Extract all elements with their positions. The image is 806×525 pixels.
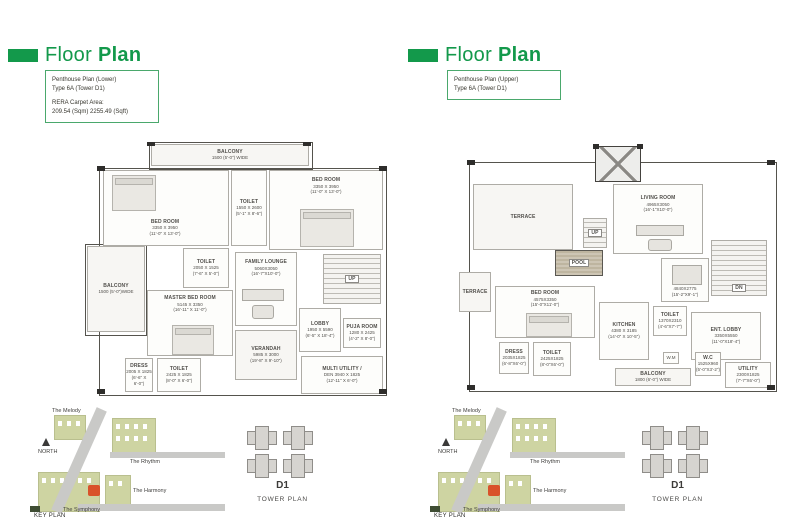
site-edge-strip (30, 506, 40, 512)
room-dim-label: 1500 (5'-0") WIDE (212, 155, 248, 161)
penthouse-lower-plan: BALCONY 1500 (5'-0") WIDE BED ROOM 3350 … (85, 142, 400, 398)
room-lobby: LOBBY 1950 X 5590 (6'-5" X 18'-4") (299, 308, 341, 352)
key-plan-caption: KEY PLAN (434, 513, 466, 519)
north-arrow-icon (42, 438, 50, 446)
room-dim-label: 1500 (5'-0")WIDE (99, 289, 134, 295)
room-balcony-top: BALCONY 1500 (5'-0") WIDE (151, 144, 309, 166)
site-block-rhythm (112, 418, 156, 456)
label-symphony: The Symphony (463, 507, 500, 513)
room-wc: W.C 1525X960 (5'-0"X3'-2") (695, 352, 721, 376)
title-bold: Plan (98, 44, 141, 66)
room-dim-label: (8'-0"X6'-0") (540, 362, 564, 368)
tower-plan-caption: TOWER PLAN (235, 496, 330, 503)
stairs-up: UP (323, 254, 381, 304)
wall-column (767, 385, 775, 390)
room-dim-label: (11'-0"X18'-4") (712, 339, 741, 345)
plan-type-line: Penthouse Plan (Upper) (454, 76, 554, 85)
room-balcony-left: BALCONY 1500 (5'-0")WIDE (87, 246, 145, 332)
room-family-lounge: FAMILY LOUNGE 5060X3050 (16'-7"X10'-0") (235, 252, 297, 326)
tower-unit (678, 454, 708, 478)
site-road-horizontal (110, 452, 225, 458)
north-label: NORTH (38, 449, 57, 455)
room-dress: DRESS 2005 X 1825 (6'-6" X 6'-0") (125, 358, 153, 392)
floor-plan-header-right: Floor Plan (408, 44, 541, 67)
room-bed-room: BED ROOM 4575X3350 (15'-0"X11'-0") (495, 286, 595, 338)
room-toilet-master: TOILET 2425 X 1825 (8'-0" X 6'-0") (157, 358, 201, 392)
table-furniture (252, 305, 274, 319)
site-block-melody (454, 415, 486, 440)
room-dim-label: (5'-1" X 8'-6") (236, 211, 262, 217)
room-dim-label: (16'-11" X 11'-0") (173, 307, 206, 313)
key-plan-right: NORTH The Melody The Rhythm The Harmony … (430, 402, 625, 520)
wall-column (467, 160, 475, 165)
lift-shaft (595, 146, 641, 182)
room-toilet-mid: TOILET 2050 X 1525 (7'-6" X 5'-0") (183, 248, 229, 288)
room-dim-label: (6'-5" X 18'-4") (306, 333, 335, 339)
pool: POOL (555, 250, 603, 276)
wall-column (637, 144, 643, 149)
north-arrow-icon (442, 438, 450, 446)
room-dress: DRESS 2035X1825 (6'-8"X6'-0") (499, 342, 529, 374)
room-kitchen: KITCHEN 4380 X 3185 (14'-0" X 10'-5") (599, 302, 649, 360)
room-dim-label: (12'-11" X 6'-0") (326, 378, 357, 384)
highlighted-building (88, 485, 100, 496)
floor-plan-header-left: Floor Plan (8, 44, 141, 67)
room-name-label: W.M (667, 355, 676, 361)
room-living: LIVING ROOM 4965X3050 (16'-1"X10'-0") (613, 184, 703, 254)
wall-column (303, 142, 311, 146)
wall-column (147, 142, 155, 146)
room-bed-room-2: BED ROOM 3350 X 3950 (11'-0" X 13'-0") (269, 170, 383, 250)
wall-column (97, 389, 105, 394)
room-dim-label: (4'-2" X 8'-0") (349, 336, 375, 342)
site-road-horizontal (510, 452, 625, 458)
tower-unit (678, 426, 708, 450)
stairs-up-label: UP (345, 275, 358, 284)
tower-line: Type 6A (Tower D1) (52, 85, 152, 94)
site-block-rhythm (512, 418, 556, 456)
penthouse-upper-plan: TERRACE LIVING ROOM 4965X3050 (16'-1"X10… (455, 140, 790, 398)
title-bold: Plan (498, 44, 541, 66)
title-light: Floor (445, 44, 492, 66)
site-block-harmony (505, 475, 531, 507)
label-harmony: The Harmony (133, 488, 166, 494)
tower-plan-right: D1 TOWER PLAN (630, 424, 725, 510)
green-block-icon (8, 49, 38, 62)
plan-info-box-lower: Penthouse Plan (Lower) Type 6A (Tower D1… (45, 70, 159, 123)
wall-column (593, 144, 599, 149)
room-dim-label: (8'-0" X 6'-0") (166, 378, 192, 384)
site-edge-strip (430, 506, 440, 512)
tower-unit (283, 426, 313, 450)
key-plan-left: NORTH The Melody The Rhythm The Harmony … (30, 402, 225, 520)
room-bed-room-1: BED ROOM 3350 X 3950 (11'-0" X 13'-0") (103, 170, 229, 246)
room-toilet-master: TOILET 2425X1825 (8'-0"X6'-0") (533, 342, 571, 376)
room-dim-label: (7'-7"X6'-0") (736, 378, 760, 384)
tower-plan-left: D1 TOWER PLAN (235, 424, 330, 510)
room-multi-utility: MULTI UTILITY / DEN 3940 X 1825 (12'-11"… (301, 356, 383, 394)
tower-name: D1 (235, 480, 330, 491)
sofa-furniture (242, 289, 284, 301)
room-dim-label: 1800 (6'-0") WIDE (635, 377, 671, 383)
room-dim-label: (15'-2"X9'-1") (672, 292, 698, 298)
site-block-melody (54, 415, 86, 440)
room-verandah: VERANDAH 5985 X 3000 (19'-8" X 9'-10") (235, 330, 297, 380)
room-dim-label: (15'-0"X11'-0") (531, 302, 560, 308)
plan-type-line: Penthouse Plan (Lower) (52, 76, 152, 85)
room-toilet-center: TOILET 1550 X 2600 (5'-1" X 8'-6") (231, 170, 267, 246)
site-block-harmony (105, 475, 131, 507)
tower-line: Type 6A (Tower D1) (454, 85, 554, 94)
room-dim-label: (6'-8"X6'-0") (502, 361, 526, 367)
label-symphony: The Symphony (63, 507, 100, 513)
room-terrace-left: TERRACE (459, 272, 491, 312)
room-dim-label: (6'-6" X 6'-0") (126, 375, 152, 387)
bed-furniture (172, 325, 214, 355)
wall-column (767, 160, 775, 165)
room-dim-label: (16'-7"X10'-0") (252, 271, 281, 277)
room-terrace-top: TERRACE (473, 184, 573, 250)
key-plan-caption: KEY PLAN (34, 513, 66, 519)
plan-info-box-upper: Penthouse Plan (Upper) Type 6A (Tower D1… (447, 70, 561, 100)
label-melody: The Melody (52, 408, 81, 414)
dining-table-furniture (672, 265, 702, 285)
bed-furniture (112, 175, 156, 211)
pool-label: POOL (569, 259, 590, 268)
room-puja: PUJA ROOM 1280 X 2425 (4'-2" X 8'-0") (343, 318, 381, 348)
room-name-label: TERRACE (511, 214, 536, 221)
page-title: Floor Plan (45, 44, 141, 67)
tower-unit (247, 454, 277, 478)
stairs-up-label: UP (588, 229, 601, 238)
room-dim-label: (14'-0" X 10'-5") (608, 334, 639, 340)
room-dim-label: (11'-0" X 13'-0") (149, 231, 180, 237)
title-light: Floor (45, 44, 92, 66)
wall-column (379, 166, 387, 171)
label-harmony: The Harmony (533, 488, 566, 494)
tower-unit (642, 426, 672, 450)
sofa-furniture (636, 225, 684, 236)
north-label: NORTH (438, 449, 457, 455)
room-dim-label: (19'-8" X 9'-10") (250, 358, 281, 364)
tower-plan-caption: TOWER PLAN (630, 496, 725, 503)
room-toilet-common: TOILET 1370X2310 (4'-6"X7'-7") (653, 306, 687, 336)
label-rhythm: The Rhythm (130, 459, 160, 465)
site-road-bottom (478, 504, 625, 511)
highlighted-building (488, 485, 500, 496)
stairs-dn-label: DN (732, 284, 745, 293)
room-utility: UTILITY 2300X1825 (7'-7"X6'-0") (725, 362, 771, 388)
room-dim-label: (11'-0" X 13'-0") (310, 189, 341, 195)
stairs-up: UP (583, 218, 607, 248)
stairs-dn: DN (711, 240, 767, 296)
table-furniture (648, 239, 672, 251)
bed-furniture (300, 209, 354, 247)
site-road-bottom (78, 504, 225, 511)
room-dining: DINING 4840X2775 (15'-2"X9'-1") (661, 258, 709, 302)
rera-area-value: 209.54 (Sqm) 2255.49 (Sqft) (52, 108, 152, 117)
wall-column (467, 385, 475, 390)
page-title: Floor Plan (445, 44, 541, 67)
wall-column (379, 389, 387, 394)
label-melody: The Melody (452, 408, 481, 414)
wall-column (97, 166, 105, 171)
room-balcony: BALCONY 1800 (6'-0") WIDE (615, 368, 691, 386)
label-rhythm: The Rhythm (530, 459, 560, 465)
tower-name: D1 (630, 480, 725, 491)
green-block-icon (408, 49, 438, 62)
room-master-bed-room: MASTER BED ROOM 5145 X 3350 (16'-11" X 1… (147, 290, 233, 356)
room-dim-label: (16'-1"X10'-0") (644, 207, 673, 213)
tower-unit (283, 454, 313, 478)
tower-unit (642, 454, 672, 478)
bed-furniture (526, 313, 572, 337)
washing-machine: W.M (663, 352, 679, 364)
tower-unit (247, 426, 277, 450)
room-name-label: TERRACE (463, 289, 488, 296)
room-dim-label: (7'-6" X 5'-0") (193, 271, 219, 277)
rera-label: RERA Carpet Area: (52, 99, 152, 108)
room-dim-label: (5'-0"X3'-2") (696, 367, 720, 373)
room-dim-label: (4'-6"X7'-7") (658, 324, 682, 330)
